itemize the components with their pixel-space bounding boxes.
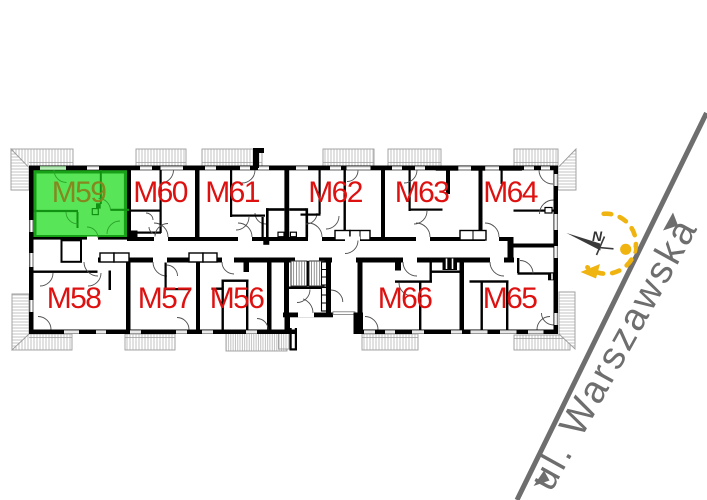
svg-text:M57: M57 — [138, 282, 192, 315]
svg-text:M63: M63 — [395, 176, 449, 209]
svg-text:M61: M61 — [205, 176, 259, 209]
svg-text:N: N — [592, 228, 603, 244]
svg-text:M56: M56 — [210, 282, 264, 315]
svg-text:M65: M65 — [483, 282, 537, 315]
svg-text:M59: M59 — [52, 176, 106, 209]
svg-text:M62: M62 — [308, 176, 362, 209]
svg-text:M60: M60 — [133, 176, 187, 209]
svg-text:M64: M64 — [483, 176, 537, 209]
svg-text:M66: M66 — [378, 282, 432, 315]
svg-text:M58: M58 — [47, 282, 101, 315]
